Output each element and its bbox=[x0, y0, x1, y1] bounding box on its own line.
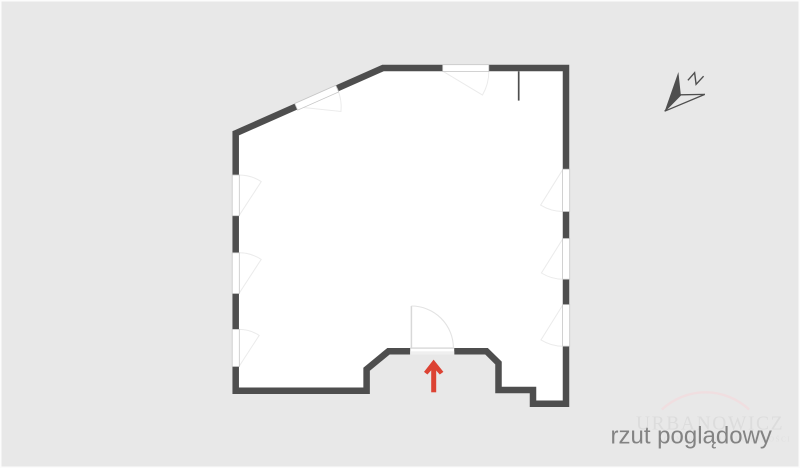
svg-text:rzut poglądowy: rzut poglądowy bbox=[611, 423, 772, 450]
